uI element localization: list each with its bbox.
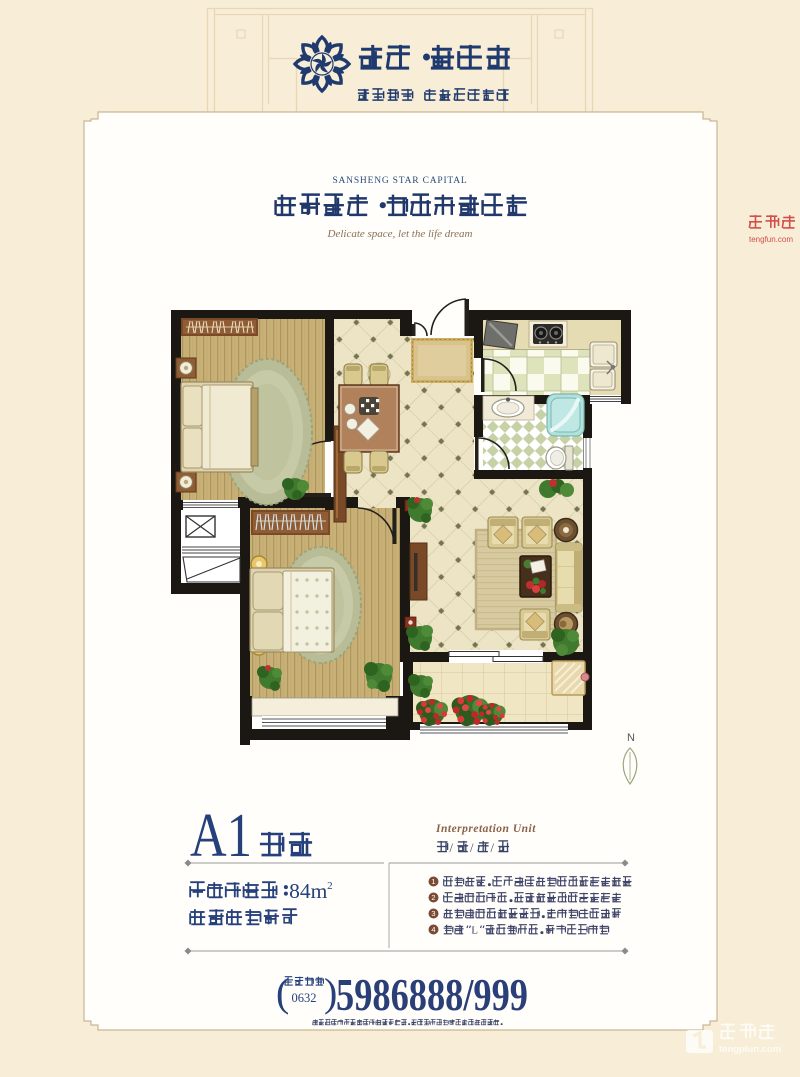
svg-text:N: N (627, 732, 635, 744)
svg-text:SANSHENG STAR CAPITAL: SANSHENG STAR CAPITAL (332, 176, 467, 186)
svg-text:Interpretation Unit: Interpretation Unit (435, 823, 536, 835)
svg-text:4: 4 (431, 925, 435, 934)
svg-text:tengplun.com: tengplun.com (719, 1044, 781, 1055)
svg-text:/: / (470, 841, 474, 855)
svg-text:2: 2 (431, 893, 435, 902)
svg-text:L: L (471, 925, 478, 937)
svg-text:1: 1 (431, 877, 435, 886)
svg-text:/: / (450, 841, 454, 855)
svg-text:Delicate space, let the life d: Delicate space, let the life dream (327, 228, 473, 240)
svg-text:3: 3 (431, 909, 435, 918)
svg-text:A1: A1 (190, 802, 252, 870)
svg-text:tengfun.com: tengfun.com (749, 235, 793, 244)
svg-text:2: 2 (327, 880, 333, 892)
svg-text:0632: 0632 (292, 991, 317, 1005)
svg-text:84m: 84m (289, 879, 328, 903)
svg-text:5986888/999: 5986888/999 (336, 969, 528, 1020)
svg-text:/: / (491, 841, 495, 855)
